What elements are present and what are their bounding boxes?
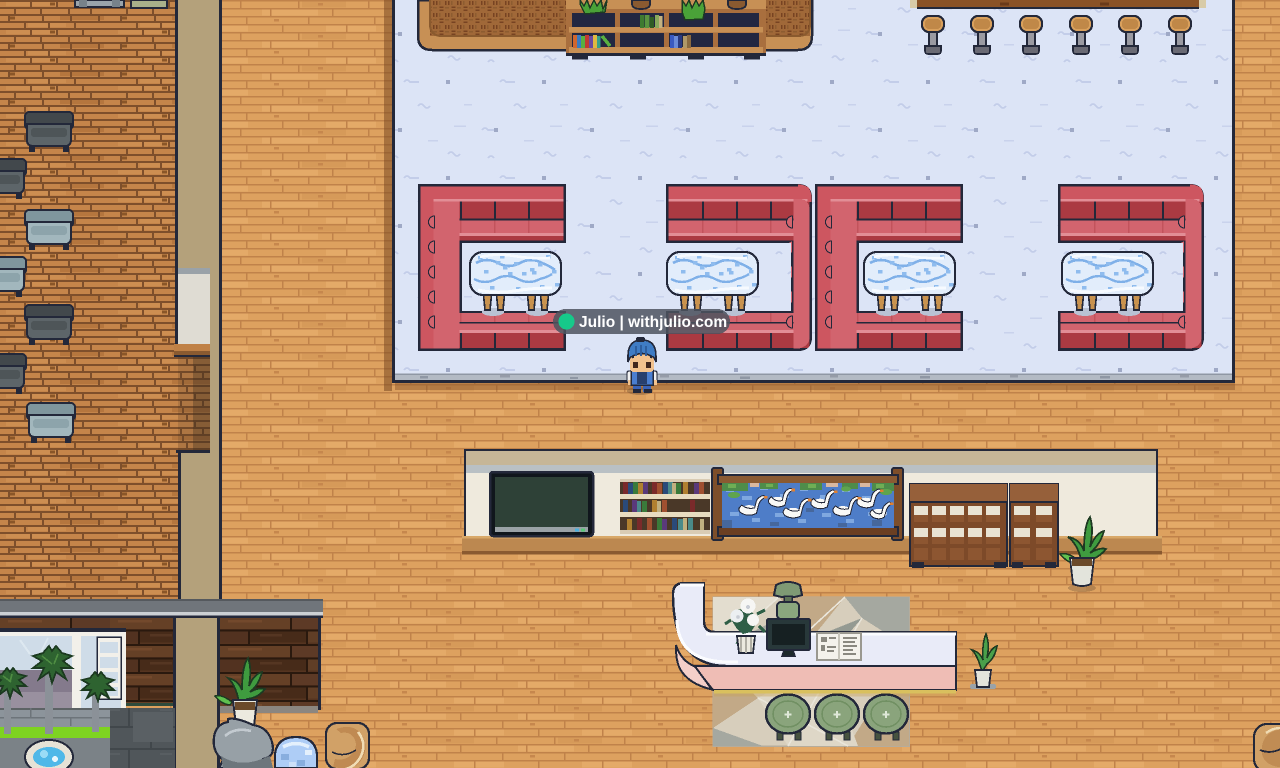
- svg-text:Julio | withjulio.com: Julio | withjulio.com: [579, 314, 727, 331]
